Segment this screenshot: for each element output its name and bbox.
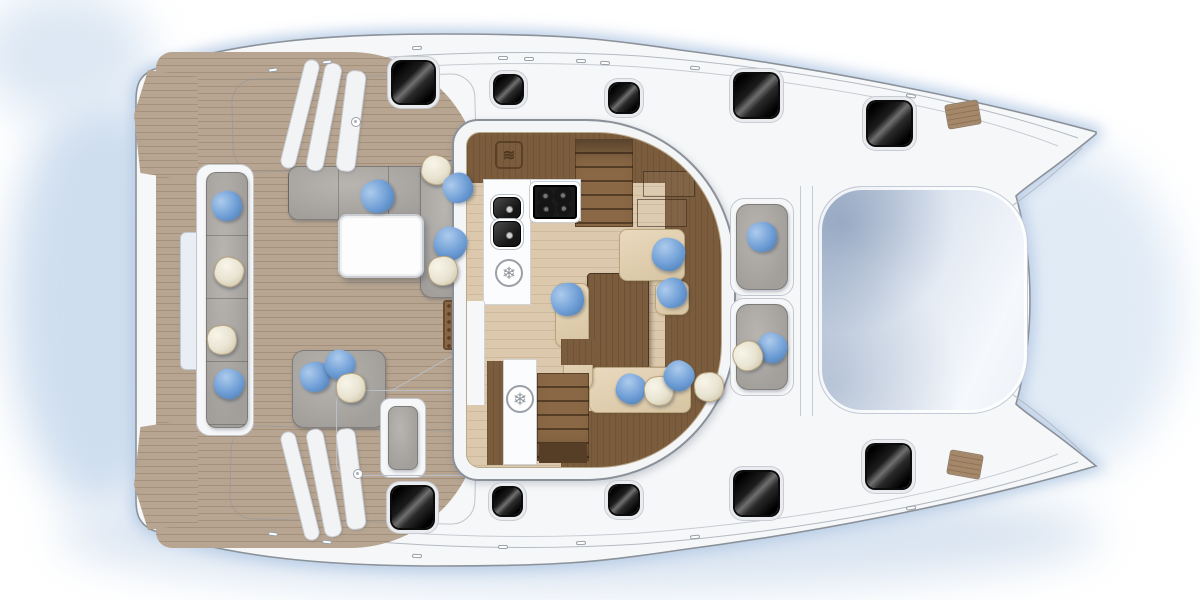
crossbeam-line-aft — [800, 186, 801, 416]
dining-table — [587, 273, 649, 369]
catamaran-deck-plan: ❄ ≋ ❄ — [0, 0, 1200, 600]
deck-hatch — [867, 445, 910, 488]
oven-icon: ≋ — [495, 141, 523, 169]
crossbeam-line-forward — [812, 186, 813, 416]
fridge-icon-galley: ❄ — [495, 259, 523, 287]
cabinet-step-box — [561, 339, 595, 365]
deck-hatch — [735, 472, 778, 515]
transom-step-port — [134, 70, 198, 182]
deck-hatch — [392, 487, 433, 528]
snowflake-glyph: ❄ — [502, 265, 516, 282]
oven-waves-glyph: ≋ — [503, 148, 516, 163]
stove-cooktop — [533, 185, 577, 219]
trampoline — [818, 186, 1028, 414]
deck-hatch — [735, 74, 778, 117]
fridge-icon-aft: ❄ — [506, 385, 534, 413]
deck-fitting-cleat — [412, 46, 422, 50]
deck-fitting-ring — [351, 117, 361, 127]
chart-desk-outline — [643, 171, 695, 197]
transom-step-starboard — [134, 418, 198, 530]
deck-hatch — [393, 62, 434, 103]
sliding-door-gap — [467, 301, 485, 405]
deck-fitting-cleat — [498, 56, 508, 60]
deck-hatch — [610, 84, 638, 112]
deck-hatch — [610, 486, 638, 514]
galley-sink-2 — [493, 221, 521, 247]
deck-fitting-cleat — [600, 61, 610, 65]
deck-hatch — [868, 102, 911, 145]
deck-fitting-cleat — [576, 59, 586, 63]
deck-fitting-cleat — [576, 541, 586, 545]
cockpit-table — [338, 214, 424, 278]
deck-fitting-ring — [353, 469, 363, 479]
cabinet-strip-aft-left — [487, 361, 503, 465]
companionway-stairs-port — [575, 139, 633, 227]
deck-hatch — [495, 76, 522, 103]
deck-fitting-cleat — [524, 57, 534, 61]
deck-fitting-cleat — [690, 66, 700, 71]
galley-sink-1 — [493, 197, 521, 219]
deck-fitting-cleat — [412, 554, 422, 558]
locker-outline — [637, 199, 687, 227]
snowflake-glyph: ❄ — [513, 391, 527, 408]
deck-hatch — [494, 488, 521, 515]
deck-fitting-cleat — [498, 545, 508, 549]
stair-landing — [539, 443, 587, 463]
